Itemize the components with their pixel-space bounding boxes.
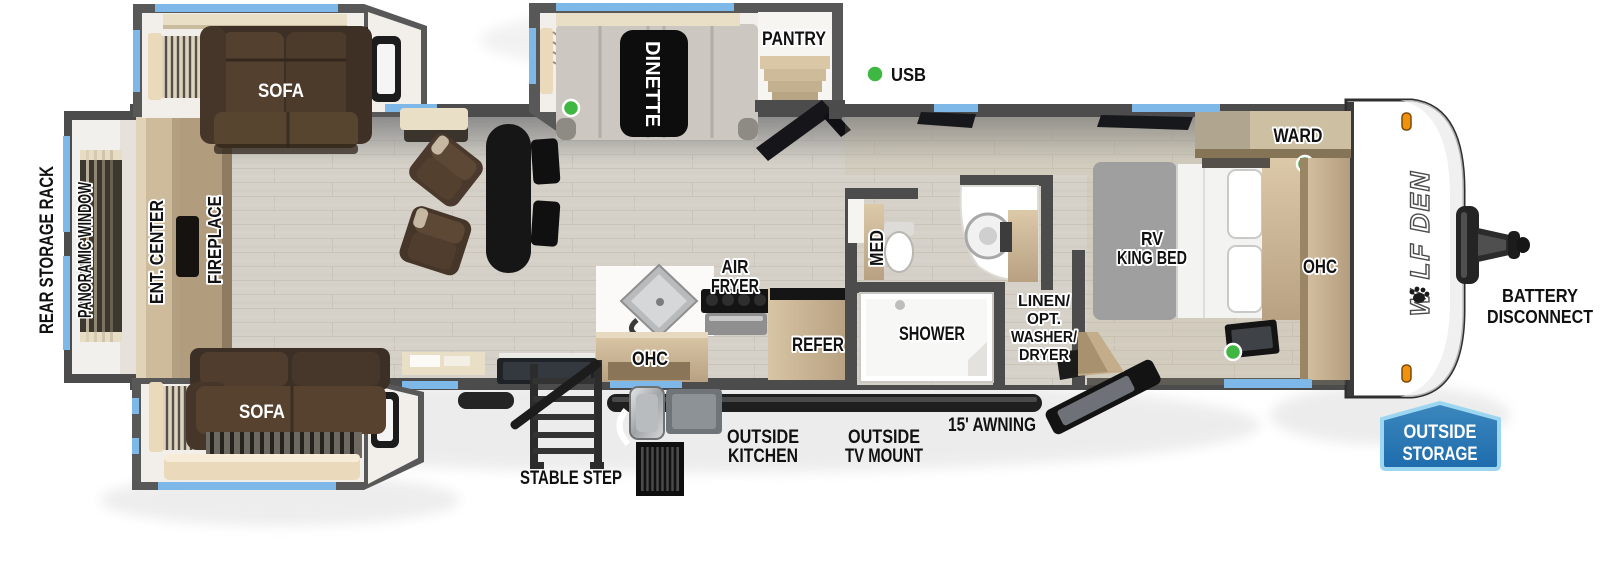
svg-text:AIR: AIR — [722, 257, 749, 277]
svg-text:DRYER: DRYER — [1019, 347, 1069, 364]
svg-text:OHC: OHC — [1303, 257, 1337, 278]
svg-text:KING BED: KING BED — [1117, 248, 1187, 268]
svg-text:WASHER/: WASHER/ — [1011, 329, 1077, 346]
svg-text:TV MOUNT: TV MOUNT — [845, 446, 923, 467]
svg-text:WARD: WARD — [1274, 126, 1323, 147]
svg-text:OUTSIDE: OUTSIDE — [1404, 422, 1477, 443]
svg-text:MED: MED — [867, 230, 887, 266]
svg-text:SHOWER: SHOWER — [899, 324, 965, 345]
svg-text:USB: USB — [891, 65, 926, 85]
svg-text:SOFA: SOFA — [239, 402, 285, 423]
svg-text:PANTRY: PANTRY — [762, 29, 826, 50]
svg-text:FRYER: FRYER — [711, 276, 759, 296]
svg-text:15' AWNING: 15' AWNING — [948, 415, 1036, 436]
svg-text:STORAGE: STORAGE — [1403, 444, 1478, 465]
svg-text:LINEN/: LINEN/ — [1018, 293, 1071, 310]
svg-text:DINETTE: DINETTE — [641, 41, 663, 127]
svg-text:OUTSIDE: OUTSIDE — [848, 427, 920, 448]
svg-text:STABLE STEP: STABLE STEP — [520, 468, 622, 489]
svg-text:FIREPLACE: FIREPLACE — [205, 196, 225, 284]
svg-text:BATTERY: BATTERY — [1502, 286, 1578, 306]
svg-text:PANORAMIC WINDOW: PANORAMIC WINDOW — [75, 182, 95, 318]
svg-text:REAR STORAGE RACK: REAR STORAGE RACK — [37, 166, 58, 334]
svg-text:OHC: OHC — [632, 349, 668, 370]
svg-text:RV: RV — [1141, 229, 1163, 249]
svg-text:REFER: REFER — [792, 335, 844, 356]
svg-text:SOFA: SOFA — [258, 81, 304, 102]
svg-text:DISCONNECT: DISCONNECT — [1487, 307, 1593, 327]
svg-text:KITCHEN: KITCHEN — [728, 446, 798, 467]
svg-text:OUTSIDE: OUTSIDE — [727, 427, 799, 448]
svg-text:OPT.: OPT. — [1027, 311, 1061, 328]
svg-text:ENT. CENTER: ENT. CENTER — [147, 200, 167, 304]
